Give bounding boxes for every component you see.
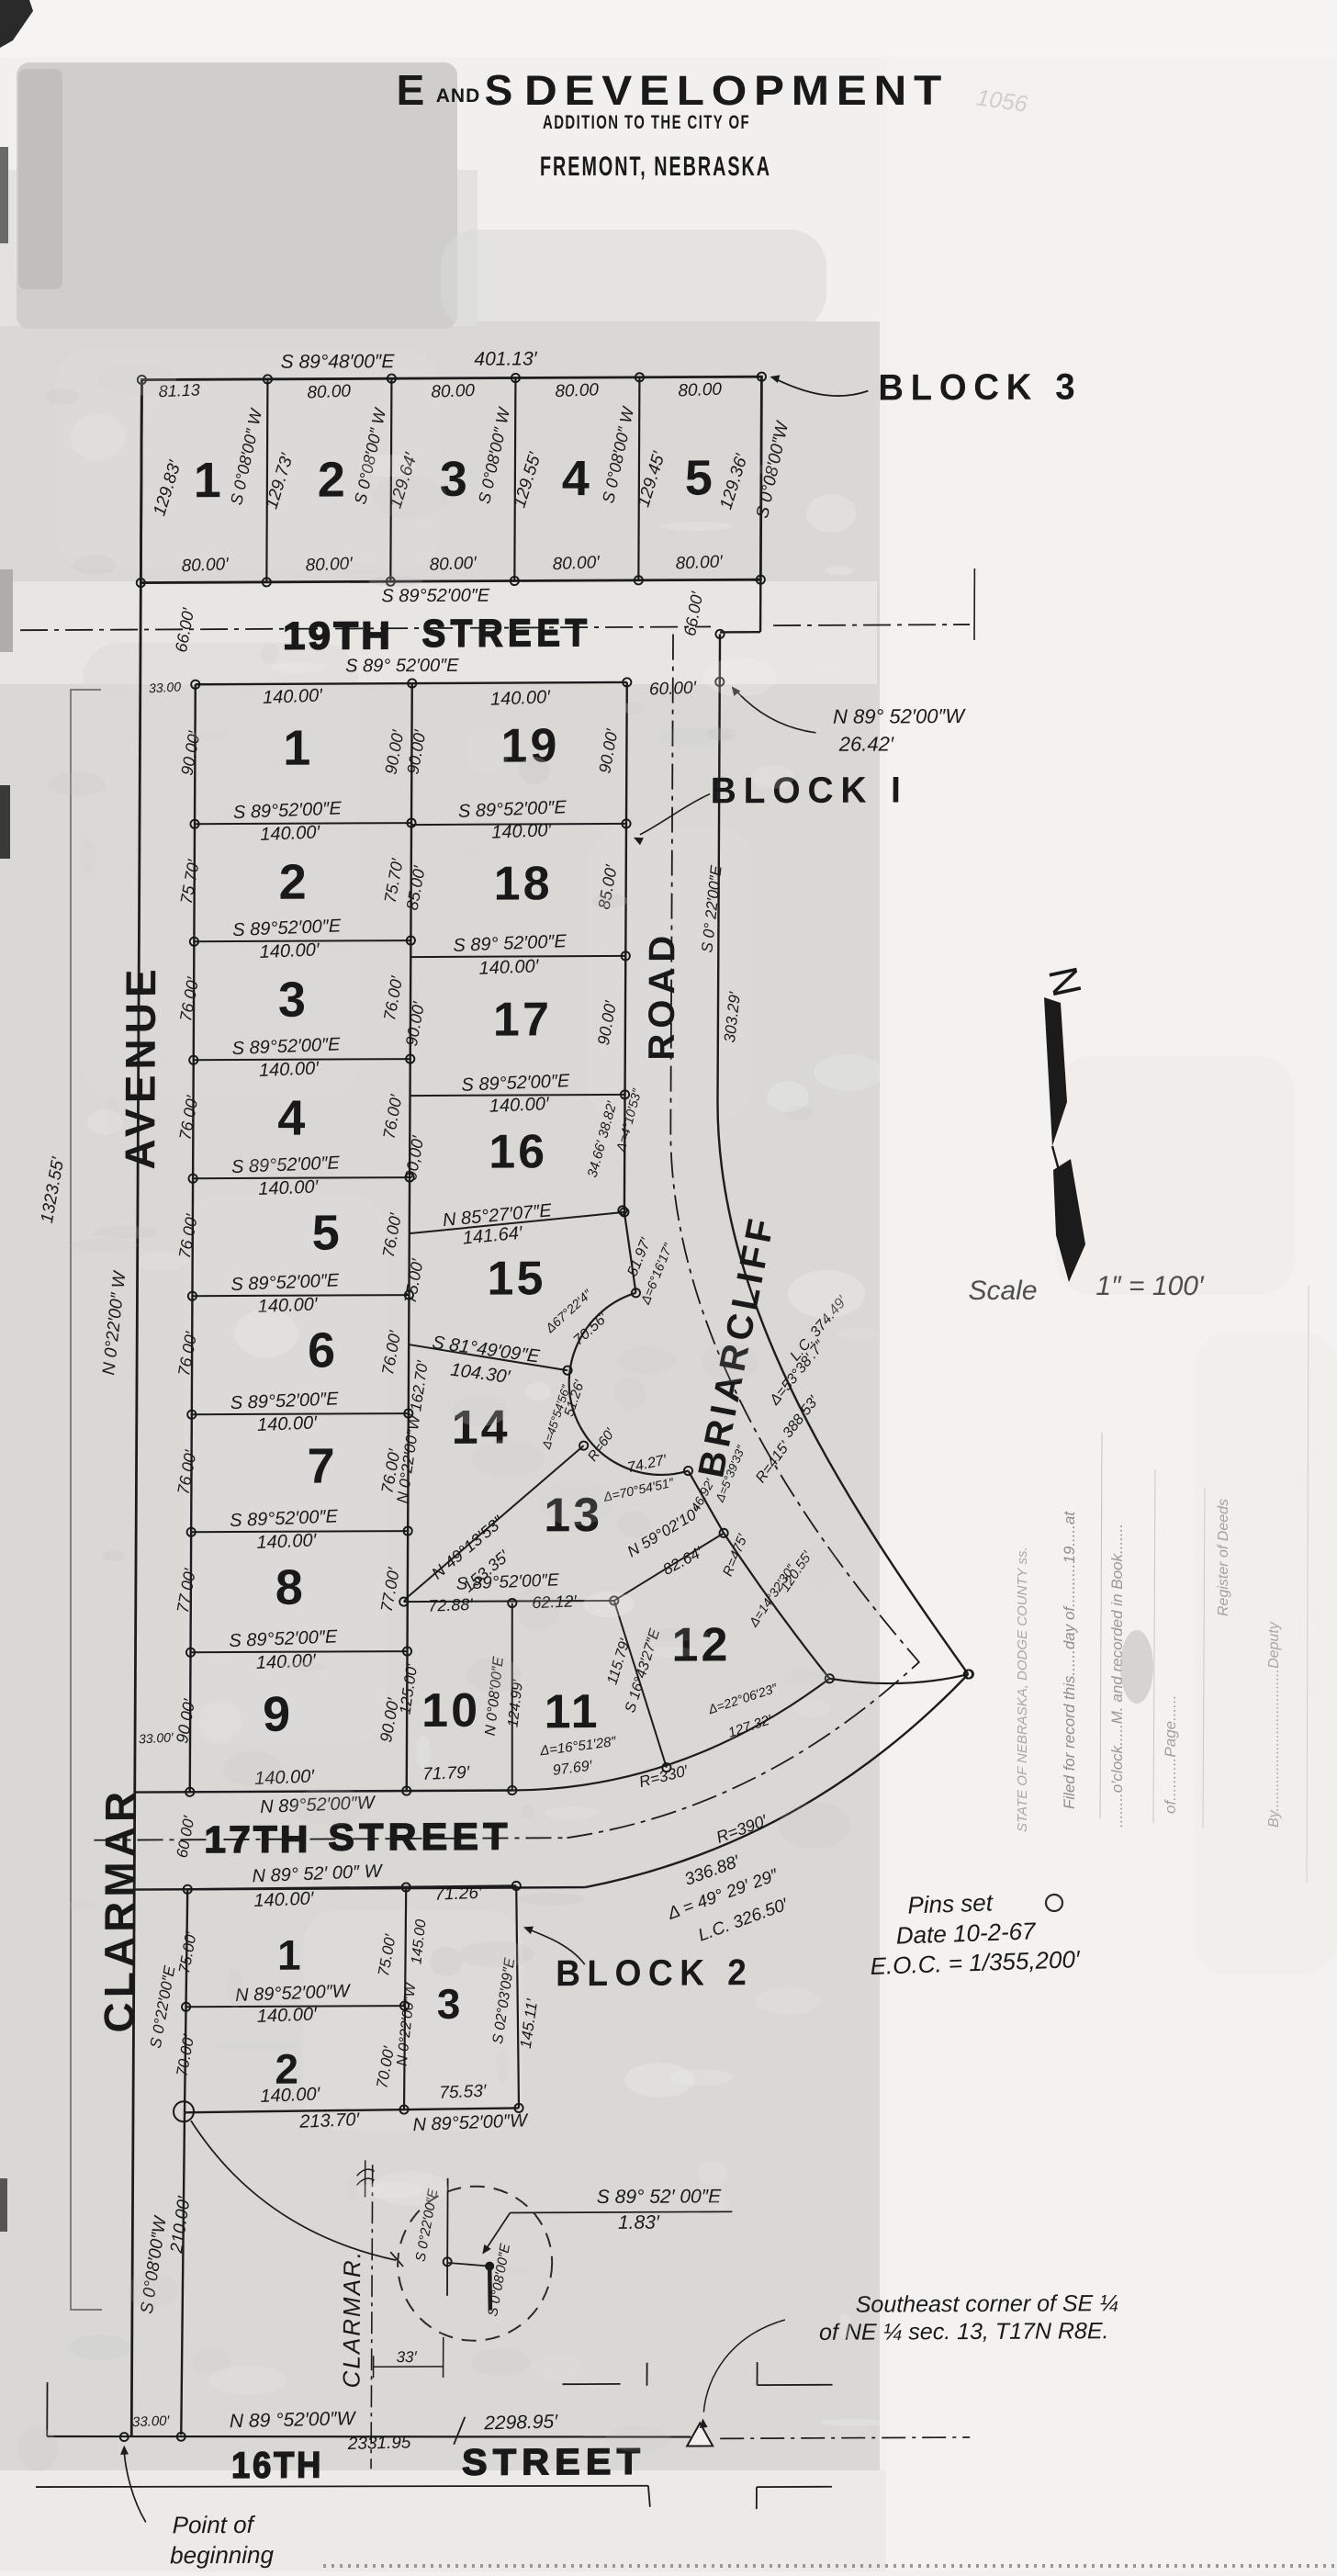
svg-text:FREMONT, NEBRASKA: FREMONT, NEBRASKA — [540, 152, 771, 182]
svg-text:15: 15 — [487, 1252, 545, 1305]
svg-text:1: 1 — [277, 1931, 301, 1979]
svg-text:71.79′: 71.79′ — [422, 1763, 471, 1784]
svg-text:140.00′: 140.00′ — [489, 1094, 550, 1117]
svg-text:BLOCK I: BLOCK I — [711, 770, 908, 811]
svg-text:Southeast corner of SE ¼: Southeast corner of SE ¼ — [856, 2290, 1118, 2317]
svg-text:140.00′: 140.00′ — [257, 1412, 319, 1435]
svg-text:2: 2 — [275, 2045, 298, 2093]
svg-text:1.83′: 1.83′ — [618, 2212, 660, 2233]
svg-text:75.53′: 75.53′ — [439, 2082, 488, 2103]
svg-text:140.00′: 140.00′ — [259, 1058, 320, 1081]
svg-text:1: 1 — [283, 721, 310, 776]
svg-text:2: 2 — [318, 452, 345, 507]
svg-text:Point of: Point of — [173, 2511, 256, 2538]
svg-text:3: 3 — [278, 973, 306, 1028]
svg-text:beginning: beginning — [170, 2541, 274, 2570]
svg-text:1: 1 — [194, 453, 221, 508]
svg-text:Date 10-2-67: Date 10-2-67 — [895, 1917, 1037, 1949]
svg-text:of NE ¼ sec. 13, T17N R8E.: of NE ¼ sec. 13, T17N R8E. — [819, 2318, 1109, 2345]
svg-text:140.00′: 140.00′ — [491, 820, 553, 843]
svg-text:140.00′: 140.00′ — [490, 687, 552, 710]
svg-text:S 89° 52′00″E: S 89° 52′00″E — [345, 656, 459, 677]
svg-text:80.00: 80.00 — [431, 381, 476, 402]
svg-text:8: 8 — [275, 1560, 303, 1615]
svg-text:140.00′: 140.00′ — [263, 685, 324, 708]
svg-text:80.00′: 80.00′ — [552, 553, 601, 574]
svg-text:26.42′: 26.42′ — [838, 732, 894, 755]
svg-text:33.00′: 33.00′ — [132, 2413, 171, 2431]
svg-text:4: 4 — [562, 451, 590, 506]
svg-text:11: 11 — [545, 1685, 601, 1738]
svg-text:213.70′: 213.70′ — [298, 2109, 361, 2132]
svg-text:BLOCK 3: BLOCK 3 — [878, 366, 1082, 408]
svg-text:S 89°52′00″E: S 89°52′00″E — [381, 586, 490, 607]
svg-text:CLARMAR.: CLARMAR. — [338, 2250, 366, 2389]
svg-text:5: 5 — [685, 450, 713, 505]
svg-text:2331.95: 2331.95 — [347, 2433, 411, 2454]
svg-text:S: S — [485, 66, 513, 114]
svg-text:3: 3 — [437, 1980, 461, 2028]
svg-text:60.00′: 60.00′ — [649, 679, 698, 700]
svg-text:140.00′: 140.00′ — [253, 1888, 315, 1911]
svg-text:Scale: Scale — [968, 1276, 1037, 1306]
svg-text:STREET: STREET — [328, 1816, 511, 1859]
svg-text:33′: 33′ — [397, 2348, 418, 2366]
svg-text:80.00: 80.00 — [307, 382, 352, 403]
svg-text:140.00′: 140.00′ — [259, 939, 320, 962]
svg-text:140.00′: 140.00′ — [260, 822, 321, 845]
svg-text:18: 18 — [494, 857, 553, 910]
svg-text:1″ = 100′: 1″ = 100′ — [1095, 1271, 1205, 1301]
svg-text:71.26′: 71.26′ — [434, 1884, 483, 1905]
svg-text:AND: AND — [436, 85, 481, 107]
svg-text:9: 9 — [263, 1687, 290, 1742]
svg-text:Register of Deeds: Register of Deeds — [1216, 1499, 1231, 1616]
svg-text:80.00: 80.00 — [678, 380, 723, 401]
svg-text:72.88′: 72.88′ — [428, 1595, 474, 1615]
svg-text:140.00′: 140.00′ — [258, 1176, 320, 1199]
svg-text:6: 6 — [308, 1322, 335, 1378]
svg-text:BLOCK 2: BLOCK 2 — [556, 1952, 753, 1994]
svg-text:STATE OF NEBRASKA, DODGE COUNT: STATE OF NEBRASKA, DODGE COUNTY ss. — [1015, 1547, 1030, 1832]
svg-text:80.00: 80.00 — [555, 380, 600, 401]
svg-text:16TH: 16TH — [231, 2446, 323, 2486]
svg-text:140.00′: 140.00′ — [256, 1530, 318, 1553]
svg-text:By............................: By...................................Dep… — [1266, 1621, 1282, 1828]
svg-text:140.00′: 140.00′ — [257, 2004, 319, 2027]
svg-text:S 89° 52′ 00″E: S 89° 52′ 00″E — [597, 2186, 722, 2208]
svg-text:STREET: STREET — [421, 611, 591, 655]
svg-text:2: 2 — [279, 855, 307, 910]
svg-text:ADDITION TO THE CITY OF: ADDITION TO THE CITY OF — [543, 112, 750, 133]
svg-text:80.00′: 80.00′ — [675, 552, 724, 573]
svg-text:33.00′: 33.00′ — [139, 1729, 175, 1746]
svg-text:12: 12 — [671, 1618, 730, 1671]
svg-text:4: 4 — [277, 1091, 305, 1146]
svg-text:S 89°48′00″E: S 89°48′00″E — [281, 351, 396, 373]
svg-text:ROAD: ROAD — [642, 930, 683, 1061]
svg-text:Filed for record this......day: Filed for record this......day of.......… — [1061, 1511, 1078, 1809]
svg-text:of..........Page......: of..........Page...... — [1162, 1695, 1179, 1814]
svg-text:140.00′: 140.00′ — [478, 956, 540, 979]
svg-text:19TH: 19TH — [283, 613, 393, 658]
svg-text:33.00: 33.00 — [149, 679, 182, 695]
svg-text:80.00′: 80.00′ — [429, 554, 477, 575]
svg-text:16: 16 — [489, 1125, 547, 1178]
svg-text:10: 10 — [421, 1684, 480, 1738]
svg-text:CLARMAR: CLARMAR — [95, 1787, 143, 2033]
svg-text:DEVELOPMENT: DEVELOPMENT — [524, 67, 949, 114]
svg-text:2298.95′: 2298.95′ — [483, 2412, 558, 2435]
svg-text:17: 17 — [493, 993, 552, 1046]
svg-text:N 89 °52′00″W: N 89 °52′00″W — [230, 2408, 357, 2432]
svg-text:N 89° 52′00″W: N 89° 52′00″W — [833, 704, 966, 728]
svg-text:401.13′: 401.13′ — [474, 348, 537, 369]
svg-text:Pins set: Pins set — [907, 1888, 994, 1918]
svg-text:AVENUE: AVENUE — [116, 963, 164, 1170]
svg-text:5: 5 — [312, 1205, 340, 1260]
svg-text:80.00′: 80.00′ — [181, 555, 230, 576]
svg-text:7: 7 — [307, 1438, 334, 1493]
svg-text:E: E — [397, 66, 425, 114]
svg-text:17TH: 17TH — [204, 1818, 310, 1862]
